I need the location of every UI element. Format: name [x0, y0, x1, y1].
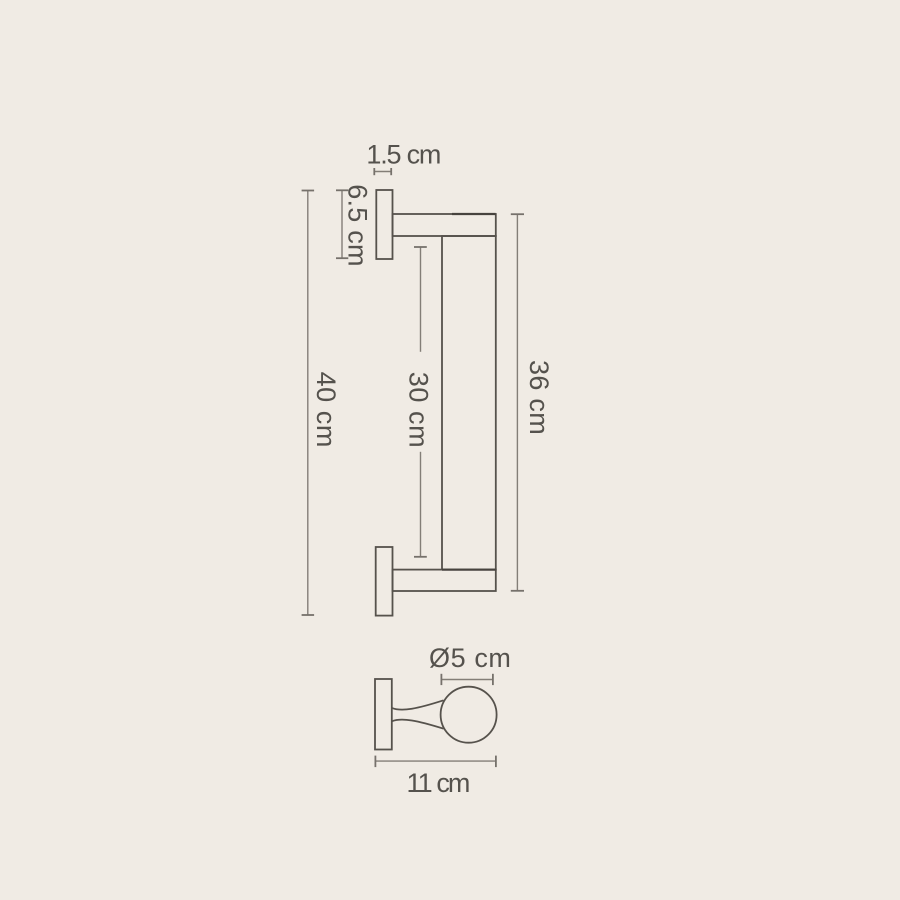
svg-text:40 cm: 40 cm [311, 372, 341, 448]
svg-text:1.5 cm: 1.5 cm [366, 139, 440, 169]
svg-text:11 cm: 11 cm [407, 768, 469, 798]
svg-text:30 cm: 30 cm [403, 372, 433, 449]
svg-text:Ø5 cm: Ø5 cm [429, 643, 512, 673]
svg-text:6.5 cm: 6.5 cm [343, 184, 373, 267]
svg-text:36 cm: 36 cm [524, 360, 554, 435]
